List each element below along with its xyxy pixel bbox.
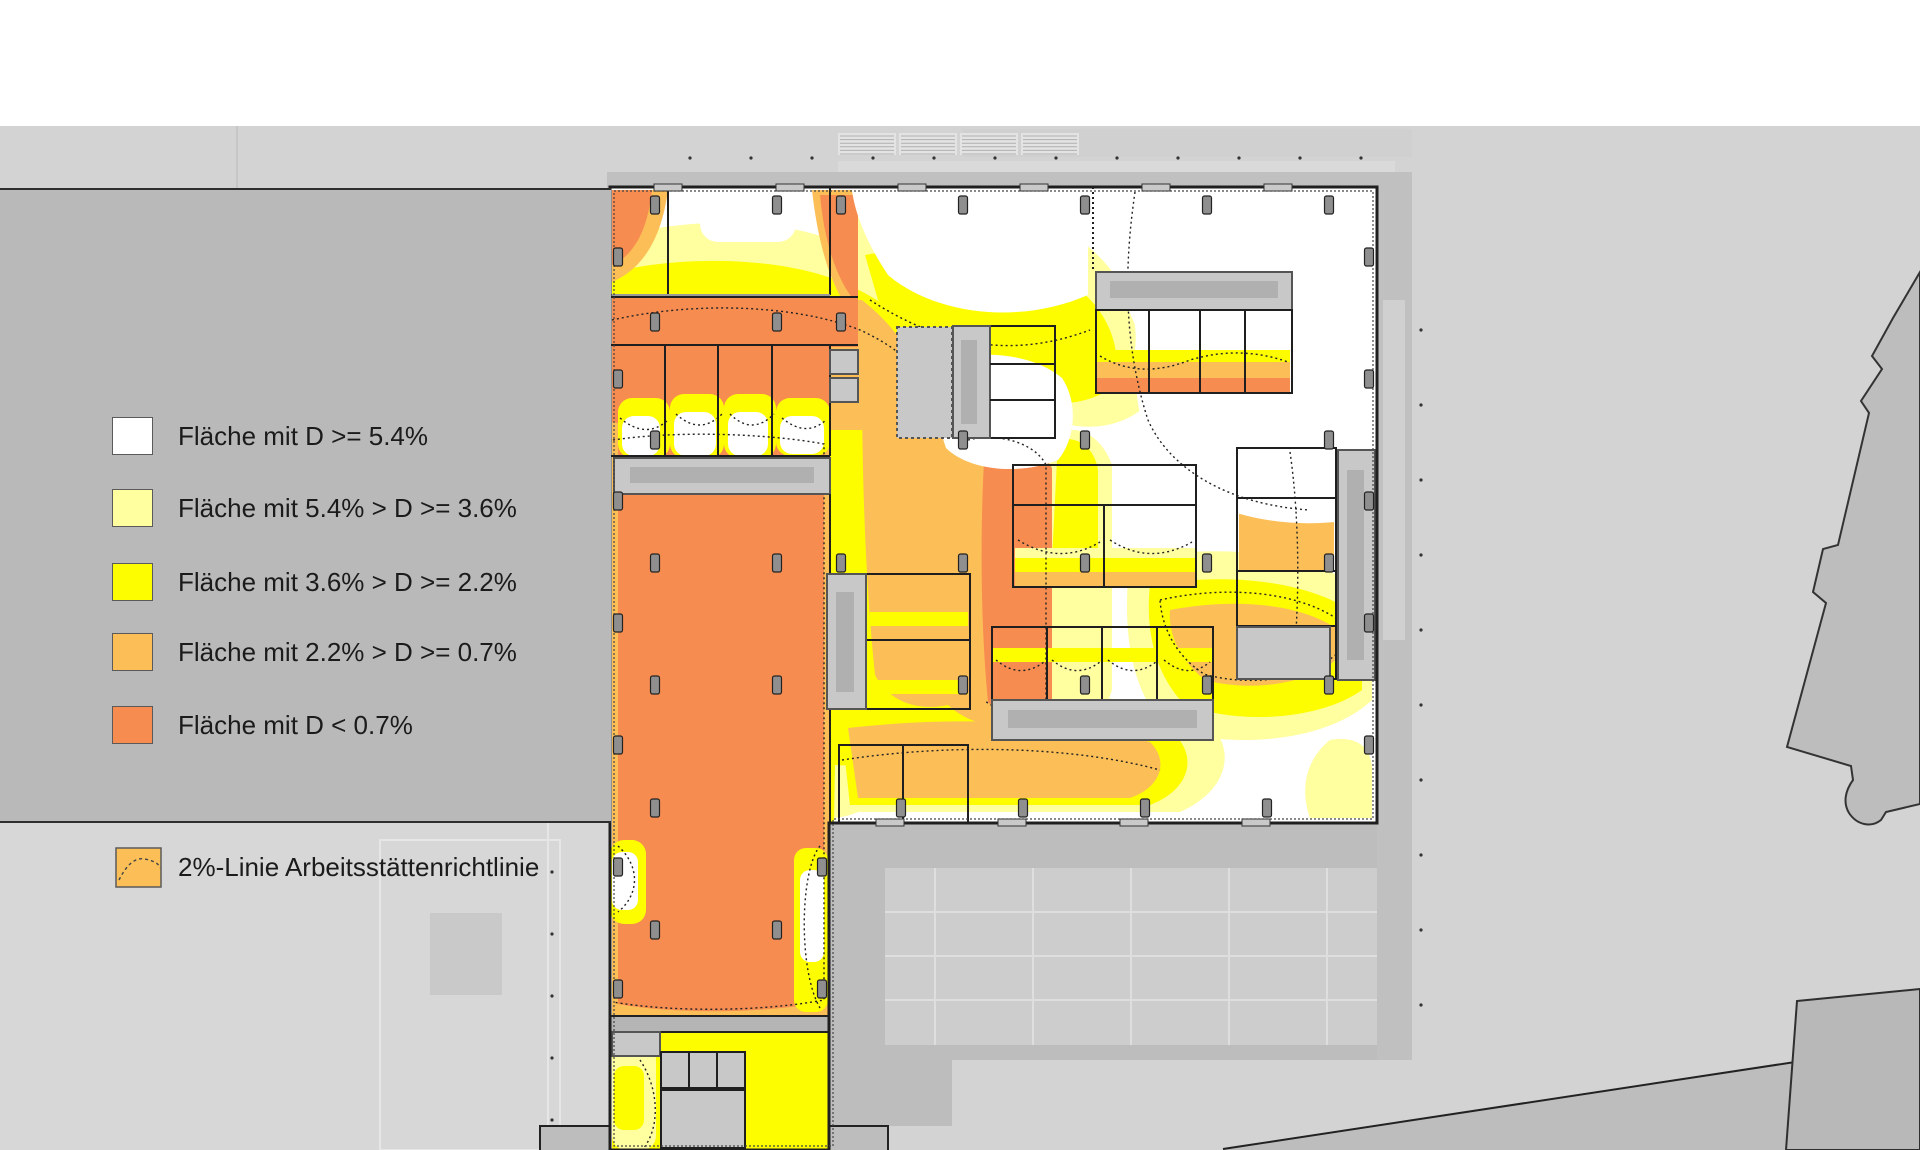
legend-swatch-3-6-to-2-2: [112, 563, 153, 601]
legend-swatch-5-4-to-3-6: [112, 489, 153, 527]
legend-label: Fläche mit 3.6% > D >= 2.2%: [178, 563, 517, 601]
legend-swatch-2-percent-line: [115, 847, 162, 888]
legend-row: Fläche mit D >= 5.4%: [0, 417, 611, 455]
legend-row: Fläche mit D < 0.7%: [0, 706, 611, 744]
legend-row: Fläche mit 5.4% > D >= 3.6%: [0, 489, 611, 527]
corner-parcel: [1786, 989, 1920, 1150]
legend-swatch-d-lt-0-7: [112, 706, 153, 744]
legend-label: Fläche mit 5.4% > D >= 3.6%: [178, 489, 517, 527]
context-block: [430, 913, 502, 995]
legend-panel: Fläche mit D >= 5.4% Fläche mit 5.4% > D…: [0, 188, 611, 823]
facade-notch-band: [838, 161, 1395, 172]
legend-label: Fläche mit D < 0.7%: [178, 706, 413, 744]
legend-row: Fläche mit 3.6% > D >= 2.2%: [0, 563, 611, 601]
legend-row: Fläche mit 2.2% > D >= 0.7%: [0, 633, 611, 671]
legend-note-label: 2%-Linie Arbeitsstättenrichtlinie: [178, 847, 539, 888]
legend-note-row: 2%-Linie Arbeitsstättenrichtlinie: [0, 847, 700, 888]
legend-label: Fläche mit 2.2% > D >= 0.7%: [178, 633, 517, 671]
daylight-analysis-page: Fläche mit D >= 5.4% Fläche mit 5.4% > D…: [0, 0, 1920, 1150]
legend-label: Fläche mit D >= 5.4%: [178, 417, 428, 455]
legend-swatch-2-2-to-0-7: [112, 633, 153, 671]
legend-swatch-d-gte-5-4: [112, 417, 153, 455]
